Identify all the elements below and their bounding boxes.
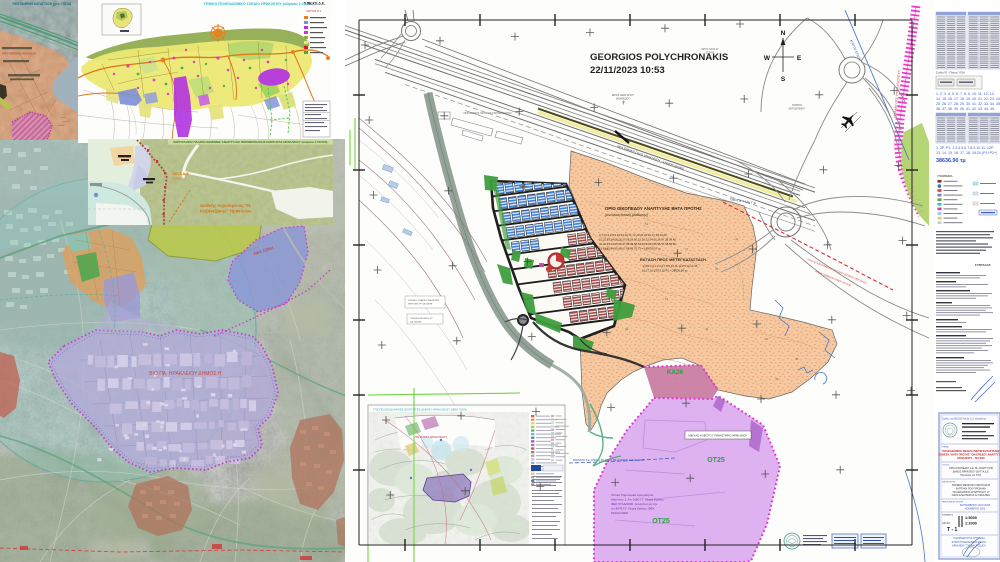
svg-text:ΚΛΙΜΑΚΕΣ: ΚΛΙΜΑΚΕΣ <box>942 514 954 517</box>
svg-text:E: E <box>797 55 802 62</box>
svg-text:43: 43 <box>775 377 779 381</box>
svg-text:44: 44 <box>735 237 739 241</box>
svg-text:47: 47 <box>685 247 689 251</box>
svg-text:25. 26. 27. 28. 29. 30. 31. 32: 25. 26. 27. 28. 29. 30. 31. 32. 33. 34. … <box>936 102 1000 106</box>
svg-text:1:2000: 1:2000 <box>965 522 977 526</box>
svg-text:ΤΕΧΝΙΚΟ ΓΡΑΦΕΙΟ ΜΕΛΕΤΩΝ: ΤΕΧΝΙΚΟ ΓΡΑΦΕΙΟ ΜΕΛΕΤΩΝ <box>408 299 439 302</box>
svg-text:46: 46 <box>705 327 709 331</box>
svg-text:Σελίδα 97 - Πλάτος ΥΓΔΑ: Σελίδα 97 - Πλάτος ΥΓΔΑ <box>936 71 965 75</box>
svg-text:ΥΠΟΜΝΗΜΑ: ΥΠΟΜΝΗΜΑ <box>937 174 953 178</box>
svg-text:ΦΕΚ 57ΑΔ/2000. Αναρτάται μη τη: ΦΕΚ 57ΑΔ/2000. Αναρτάται μη την <box>611 502 658 506</box>
svg-text:ΓΠΣ ΠΟΛΕΟΔΟΜΙΚΕΣ ΕΝΟΤΗΤΕΣ ΔΗΜΟ: ΓΠΣ ΠΟΛΕΟΔΟΜΙΚΕΣ ΕΝΟΤΗΤΕΣ ΔΗΜΟΥ ΗΡΑΚΛΕΙΟ… <box>373 408 467 412</box>
svg-text:ΒΙΟ.ΠΑ. ΗΡΑΚΛΕΙΟΥ ΔΗΜΟΣ Η.: ΒΙΟ.ΠΑ. ΗΡΑΚΛΕΙΟΥ ΔΗΜΟΣ Η. <box>149 371 223 377</box>
svg-text:ΠΕ ΒΙΟΠΑ ΗΡΑΚΛΕΙΟΥ: ΠΕ ΒΙΟΠΑ ΗΡΑΚΛΕΙΟΥ <box>415 435 447 439</box>
svg-text:W: W <box>764 55 771 62</box>
svg-text:ΓΕΝΙΚΟ ΠΟΛΕΟΔΟΜΙΚΟ ΣΧΕΔΙΟ ΗΡΑΚ: ΓΕΝΙΚΟ ΠΟΛΕΟΔΟΜΙΚΟ ΣΧΕΔΙΟ ΗΡΑΚΛΕΙΟΥ (κλί… <box>204 2 315 6</box>
svg-text:1. 2. 3. 4. 5. 6. 7. 8. 9. 10.: 1. 2. 3. 4. 5. 6. 7. 8. 9. 10. 11. 12. 1… <box>936 92 995 96</box>
svg-text:13. 14. 15. 16. 17. 18. 19.20.: 13. 14. 15. 16. 17. 18. 19.20.(P1+P2+) <box>936 151 997 155</box>
svg-text:21.22.23.24.25.26.27.28.29.30.: 21.22.23.24.25.26.27.28.29.30.31.32.33.3… <box>599 238 676 242</box>
svg-text:ΟΤ25: ΟΤ25 <box>707 457 725 464</box>
svg-text:16.17.18.19.Ρ3.20.Ρ1 = 38636.9: 16.17.18.19.Ρ3.20.Ρ1 = 38636.90 τμ <box>642 269 688 273</box>
svg-text:Ηράκλειο: Ηράκλειο <box>172 177 186 181</box>
svg-text:ΟΔ 1529/98: ΟΔ 1529/98 <box>410 320 422 323</box>
svg-text:49: 49 <box>625 327 629 331</box>
svg-text:Διεθνής Αερολιμένας "Ν.: Διεθνής Αερολιμένας "Ν. <box>200 203 251 208</box>
svg-text:1:5000: 1:5000 <box>965 516 977 520</box>
svg-text:Προτάσεις επί Τ.Ρ.Σ.: Προτάσεις επί Τ.Ρ.Σ. <box>960 474 982 477</box>
svg-text:ΕΚΘΕΣΗ "ΒΗΤΑ ΠΡΟΤΗΣ" ΟΙΚΟΠΕΔΟΥ: ΕΚΘΕΣΗ "ΒΗΤΑ ΠΡΟΤΗΣ" ΟΙΚΟΠΕΔΟΥ ΑΝΑΠΤΥΞΗΣ <box>938 453 1000 457</box>
svg-text:3.7.13.4.4.8.9.10.22.10.71.72.: 3.7.13.4.4.8.9.10.22.10.71.72.13.24.15.1… <box>599 233 667 237</box>
svg-text:36. 37. 38. 39. 40. 41. 42. 43: 36. 37. 38. 39. 40. 41. 42. 43. 44. 45. <box>936 107 995 111</box>
svg-text:38636.90 τμ: 38636.90 τμ <box>936 158 966 164</box>
svg-text:ΟΡΙΟ ΟΙΚΟΠΕΔΟΥ ΑΝΑΠΤΥΞΗΣ ΒΗΤΑ: ΟΡΙΟ ΟΙΚΟΠΕΔΟΥ ΑΝΑΠΤΥΞΗΣ ΒΗΤΑ ΠΡΟΤΗΣ <box>605 206 702 211</box>
svg-text:Τ - 1: Τ - 1 <box>947 527 957 533</box>
svg-text:61.62.63.64.65.66.67.68.69.70.: 61.62.63.64.65.66.67.68.69.70.71 = 16979… <box>599 247 661 251</box>
svg-text:ΕΣΤΑΥΡ: ΕΣΤΑΥΡ <box>706 51 715 54</box>
svg-text:ΘΕΜΑ: ΘΕΜΑ <box>942 446 949 449</box>
svg-text:ΟΤ25: ΟΤ25 <box>652 518 670 525</box>
svg-text:224Α/1/2000: 224Α/1/2000 <box>611 511 628 515</box>
svg-text:ΥΦΙΣΤΑΜΕΝΟΣ ΟΙΚΙΣΜΟΣ ΛΙΝΟΠΕΡΑΜ: ΥΦΙΣΤΑΜΕΝΟΣ ΟΙΚΙΣΜΟΣ ΛΙΝΟΠΕΡΑΜΑΤΩΝ <box>463 112 512 115</box>
svg-text:ΧΩΡΟΤΑΞΙΚΟ ΠΛΑΙΣΙΟ ΒΙΩΣΙΜΗΣ ΑΝ: ΧΩΡΟΤΑΞΙΚΟ ΠΛΑΙΣΙΟ ΒΙΩΣΙΜΗΣ ΑΝΑΠΤΥΞΗΣ ΠΕ… <box>173 140 327 144</box>
svg-text:Σχέδιο: αρ.06/2023 Αποφ. Δ.Σ.: Σχέδιο: αρ.06/2023 Αποφ. Δ.Σ. Ηρακλείου <box>942 418 987 421</box>
svg-text:Η ΕΠΙΒΛΕΠΟΥΣΑ ΥΠΗΡΕΣΙΑ: Η ΕΠΙΒΛΕΠΟΥΣΑ ΥΠΗΡΕΣΙΑ <box>953 537 985 540</box>
svg-text:52: 52 <box>765 337 769 341</box>
svg-text:ΗΡΑΚΛΕΙΟΥ - ΤΕΥΧΟΣ: ΗΡΑΚΛΕΙΟΥ - ΤΕΥΧΟΣ <box>957 456 985 460</box>
svg-text:Καζαντζάκης" Ηρακλείου: Καζαντζάκης" Ηρακλείου <box>200 208 252 213</box>
svg-text:52: 52 <box>645 222 649 226</box>
svg-text:ΣΥΝΤΑΞΑΣ: ΣΥΝΤΑΞΑΣ <box>975 263 991 267</box>
svg-text:ΜΕΓΑΛΟ ΚΛΕΙΣΤΟ ΓΥΜΝΑΣΤΗΡΙΟ ΗΡΑ: ΜΕΓΑΛΟ ΚΛΕΙΣΤΟ ΓΥΜΝΑΣΤΗΡΙΟ ΗΡΑΚΛΕΙΟΥ <box>689 434 748 438</box>
svg-text:48: 48 <box>795 357 799 361</box>
svg-text:Υ.ΠΕ.ΧΩ.Δ.Ε.: Υ.ΠΕ.ΧΩ.Δ.Ε. <box>304 2 325 6</box>
svg-text:ΑΡ ΣΧ: ΑΡ ΣΧ <box>942 521 950 525</box>
svg-text:ΝΟΕΜΒΡΙΟΣ 2023: ΝΟΕΜΒΡΙΟΣ 2023 <box>965 507 986 510</box>
svg-text:S: S <box>781 76 786 83</box>
svg-text:απ 4978 Γ.Γ. Περιφ Κρήτης. ΦΕΚ: απ 4978 Γ.Γ. Περιφ Κρήτης. ΦΕΚ <box>611 507 655 511</box>
svg-text:ΧΩ-1 Α.Ε.: ΧΩ-1 Α.Ε. <box>172 171 190 176</box>
svg-text:45: 45 <box>715 267 719 271</box>
svg-text:ΕΚΤΑΣΗ ΠΡΟΣ ΜΕΤΕΓΚΑΤΑΣΤΑΣΗ: ΕΚΤΑΣΗ ΠΡΟΣ ΜΕΤΕΓΚΑΤΑΣΤΑΣΗ <box>640 257 706 262</box>
svg-text:ΑΘΑΝΑΣΙΟΥ: ΑΘΑΝΑΣΙΟΥ <box>616 97 630 100</box>
svg-text:(συνολική έκταση μίσθωσης): (συνολική έκταση μίσθωσης) <box>605 213 648 217</box>
svg-text:ΙΕΡΟΣ ΝΑΟΣ ΑΓ: ΙΕΡΟΣ ΝΑΟΣ ΑΓ <box>701 48 719 51</box>
svg-text:ΚΟΜΒΟΣ: ΚΟΜΒΟΣ <box>792 105 802 107</box>
svg-text:ΠΟΛΕΟΔΟΜΙΚΗ ΜΕΛΕΤΗ ΜΕΤΕΓΚΑΤΑΣΤ: ΠΟΛΕΟΔΟΜΙΚΗ ΜΕΛΕΤΗ ΜΕΤΕΓΚΑΤΑΣΤΑΣΗΣ <box>942 449 1000 453</box>
svg-text:ΧΑΡΤΗΣ Π.2: ΧΑΡΤΗΣ Π.2 <box>306 9 322 13</box>
svg-text:Αθρώτων 1. Απ 1680 Γ.Γ. Περιφ: Αθρώτων 1. Απ 1680 Γ.Γ. Περιφ Κρήτης <box>611 498 664 502</box>
svg-text:ΑΕΡΟΔΡΟΜΙΟΥ: ΑΕΡΟΔΡΟΜΙΟΥ <box>789 107 806 110</box>
svg-text:-3 (Ρ1-Ο) 1.2.3.4.7.8.9.10.11.: -3 (Ρ1-Ο) 1.2.3.4.7.8.9.10.11.12.Ρ5.13.1… <box>642 264 698 268</box>
svg-text:22/11/2023 10:53: 22/11/2023 10:53 <box>590 65 665 76</box>
svg-text:ΠΕΡΙΟΧΗ ΧΡ ΟΔ 528/99: ΠΕΡΙΟΧΗ ΧΡ ΟΔ 528/99 <box>408 303 433 306</box>
svg-text:ΚΧ26: ΚΧ26 <box>667 369 684 376</box>
svg-text:N: N <box>781 30 786 37</box>
svg-text:ΟΔΟΣ ΕΛΕΥΘΕΡΙΑΣ 12 ΗΡΑΚΛΕΙΟ: ΟΔΟΣ ΕΛΕΥΘΕΡΙΑΣ 12 ΗΡΑΚΛΕΙΟ <box>952 494 991 497</box>
svg-text:ΥΦΙΣΤΑΜΕΝΗ ΚΑΤΑΣΤΑΣΗ (μετ. ΓΠΣ: ΥΦΙΣΤΑΜΕΝΗ ΚΑΤΑΣΤΑΣΗ (μετ. ΓΠΣ/Α) <box>12 2 71 6</box>
svg-text:Τοπικό Ρυμοτομικό εφαρμόζεται: Τοπικό Ρυμοτομικό εφαρμόζεται <box>611 493 654 497</box>
svg-text:1. 2P. P1. 2.3.4.5.6.7.8.9.10.: 1. 2P. P1. 2.3.4.5.6.7.8.9.10.11. 12P. <box>936 146 994 150</box>
svg-text:ΤΕΧΝΙΚΗ ΕΚΘΕΣΗ ΧΡ: ΤΕΧΝΙΚΗ ΕΚΘΕΣΗ ΧΡ <box>410 318 433 320</box>
svg-text:51: 51 <box>665 297 669 301</box>
svg-text:41.42.43.44.45.46.47.48.49.50.: 41.42.43.44.45.46.47.48.49.50.51.52.53.5… <box>599 242 676 246</box>
svg-text:ΟΡΙΟ ΠΕΡΙΟΧΗΣ ΑΝΑΠΛΑΣΗΣ: ΟΡΙΟ ΠΕΡΙΟΧΗΣ ΑΝΑΠΛΑΣΗΣ <box>2 53 36 56</box>
svg-text:14. 15. 16. 17. 18. 19. 20. 21: 14. 15. 16. 17. 18. 19. 20. 21. 22. 23. … <box>936 97 1000 101</box>
